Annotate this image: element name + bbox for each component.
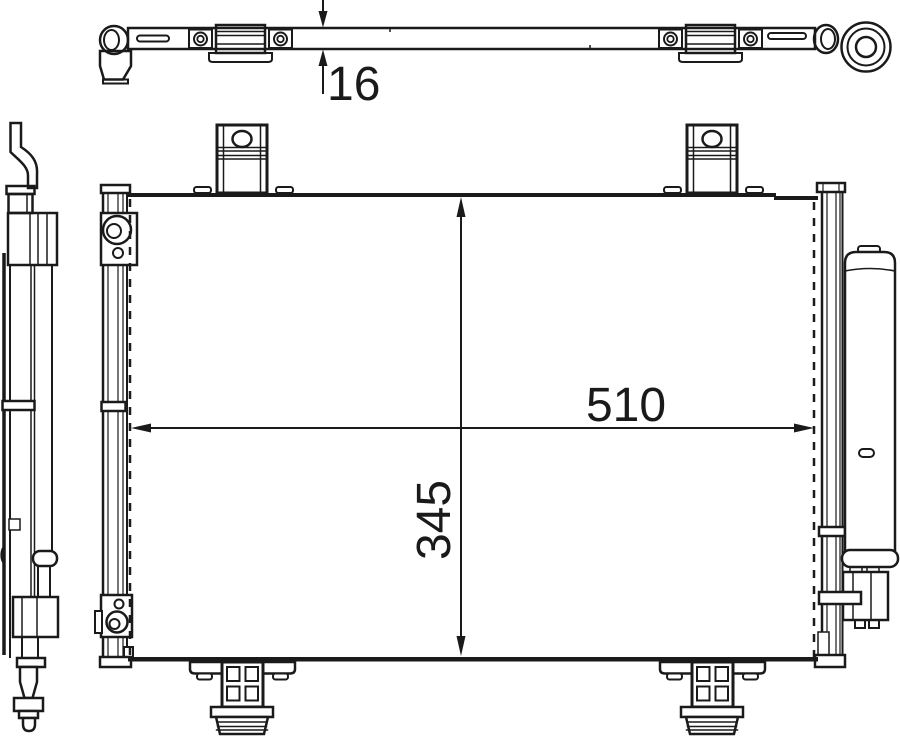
top-view-mount-clamp-right: [659, 25, 762, 62]
arrowhead-up: [457, 197, 466, 217]
side-view-bottom-block: [13, 597, 58, 637]
front-view: 510 345: [95, 125, 898, 734]
drier-cylinder: [845, 252, 895, 551]
side-view-port-block: [8, 213, 57, 265]
mounting-foot-right: [660, 662, 765, 734]
bar-slot: [137, 36, 169, 42]
receiver-drier: [819, 246, 898, 628]
side-view-drier-bottom: [33, 551, 57, 566]
arrowhead-left: [131, 424, 151, 433]
arrowhead-right: [794, 424, 814, 433]
top-view-right-port: [814, 23, 891, 72]
side-view-bottom-fitting: [20, 667, 37, 698]
side-view: [1, 123, 58, 731]
dimension-height-label: 345: [408, 480, 461, 560]
dimension-thickness-label: 16: [327, 58, 380, 111]
core-top-edge: [128, 193, 776, 197]
mounting-foot-left: [190, 662, 295, 734]
drier-bottom-band: [842, 550, 898, 567]
top-bracket-left: [194, 125, 293, 193]
top-bracket-right: [664, 125, 763, 193]
arrowhead-down: [319, 11, 328, 28]
dimension-width-label: 510: [586, 379, 666, 432]
condenser-technical-drawing: 16: [0, 0, 900, 736]
arrowhead-down: [457, 636, 466, 656]
dimension-height: 345: [408, 197, 466, 656]
tank-clamp-band: [102, 402, 126, 411]
side-view-clamp-band: [3, 401, 35, 410]
dimension-width: 510: [131, 379, 814, 433]
side-view-hook-bracket: [11, 123, 38, 188]
top-view: 16: [100, 0, 891, 111]
top-view-mount-clamp-left: [189, 25, 292, 62]
side-view-nipple: [23, 718, 35, 731]
dimension-thickness: 16: [319, 0, 381, 111]
top-view-left-port: [100, 26, 131, 84]
bar-slot: [768, 33, 806, 39]
tank-clamp-band: [819, 527, 845, 536]
